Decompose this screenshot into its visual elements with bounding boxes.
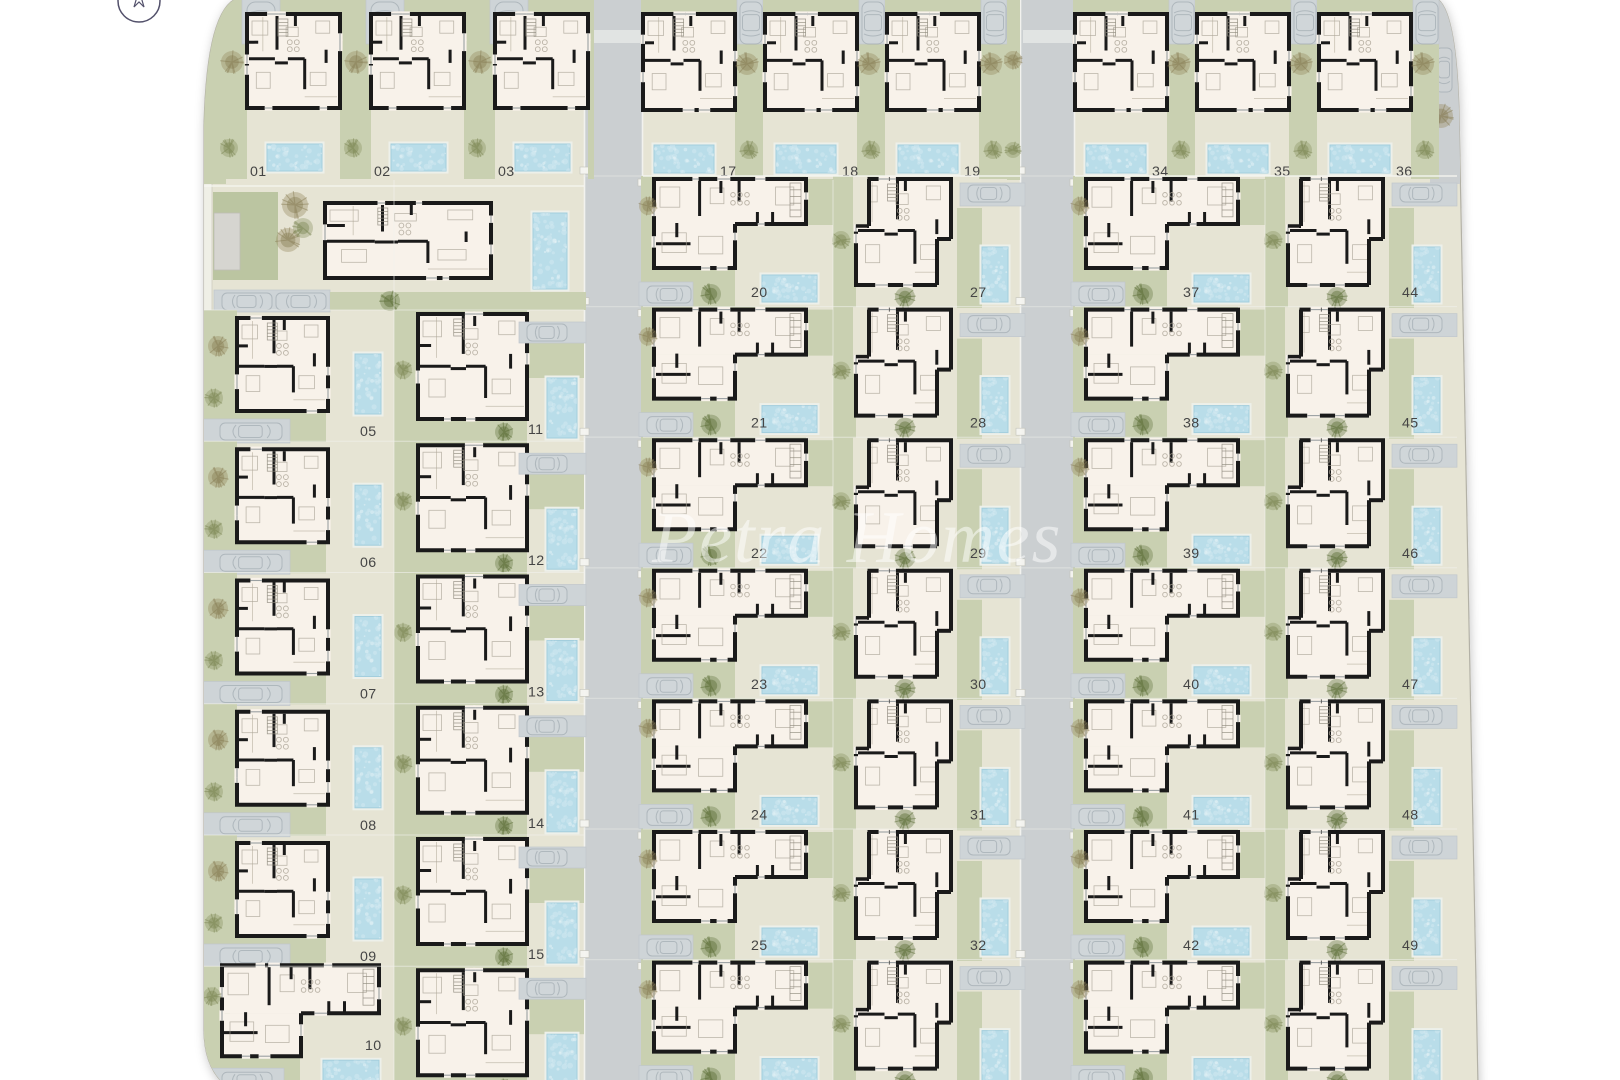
svg-text:31: 31 [970, 807, 986, 823]
svg-text:05: 05 [360, 424, 376, 440]
svg-text:10: 10 [365, 1038, 381, 1054]
svg-text:49: 49 [1402, 938, 1418, 954]
svg-text:42: 42 [1183, 938, 1199, 954]
svg-text:13: 13 [528, 685, 544, 701]
svg-text:09: 09 [360, 949, 376, 965]
svg-text:19: 19 [964, 164, 980, 180]
svg-text:21: 21 [751, 416, 767, 432]
svg-text:Petra Homes: Petra Homes [651, 497, 1062, 579]
svg-text:12: 12 [528, 553, 544, 569]
svg-text:08: 08 [360, 818, 376, 834]
svg-text:48: 48 [1402, 807, 1418, 823]
svg-text:30: 30 [970, 677, 986, 693]
svg-text:27: 27 [970, 285, 986, 301]
svg-text:38: 38 [1183, 416, 1199, 432]
svg-text:47: 47 [1402, 677, 1418, 693]
svg-text:03: 03 [498, 164, 514, 180]
svg-text:11: 11 [528, 422, 543, 438]
svg-text:02: 02 [374, 164, 390, 180]
svg-text:41: 41 [1183, 807, 1199, 823]
svg-text:25: 25 [751, 938, 767, 954]
svg-text:37: 37 [1183, 285, 1199, 301]
svg-text:36: 36 [1396, 164, 1412, 180]
svg-text:14: 14 [528, 816, 544, 832]
svg-text:28: 28 [970, 416, 986, 432]
svg-text:40: 40 [1183, 677, 1199, 693]
svg-text:39: 39 [1183, 546, 1199, 562]
svg-text:07: 07 [360, 687, 376, 703]
svg-text:24: 24 [751, 807, 767, 823]
svg-text:23: 23 [751, 677, 767, 693]
svg-text:15: 15 [528, 947, 544, 963]
svg-text:44: 44 [1402, 285, 1418, 301]
svg-text:46: 46 [1402, 546, 1418, 562]
svg-text:20: 20 [751, 285, 767, 301]
svg-text:32: 32 [970, 938, 986, 954]
svg-text:01: 01 [250, 164, 266, 180]
svg-text:45: 45 [1402, 416, 1418, 432]
svg-text:06: 06 [360, 555, 376, 571]
